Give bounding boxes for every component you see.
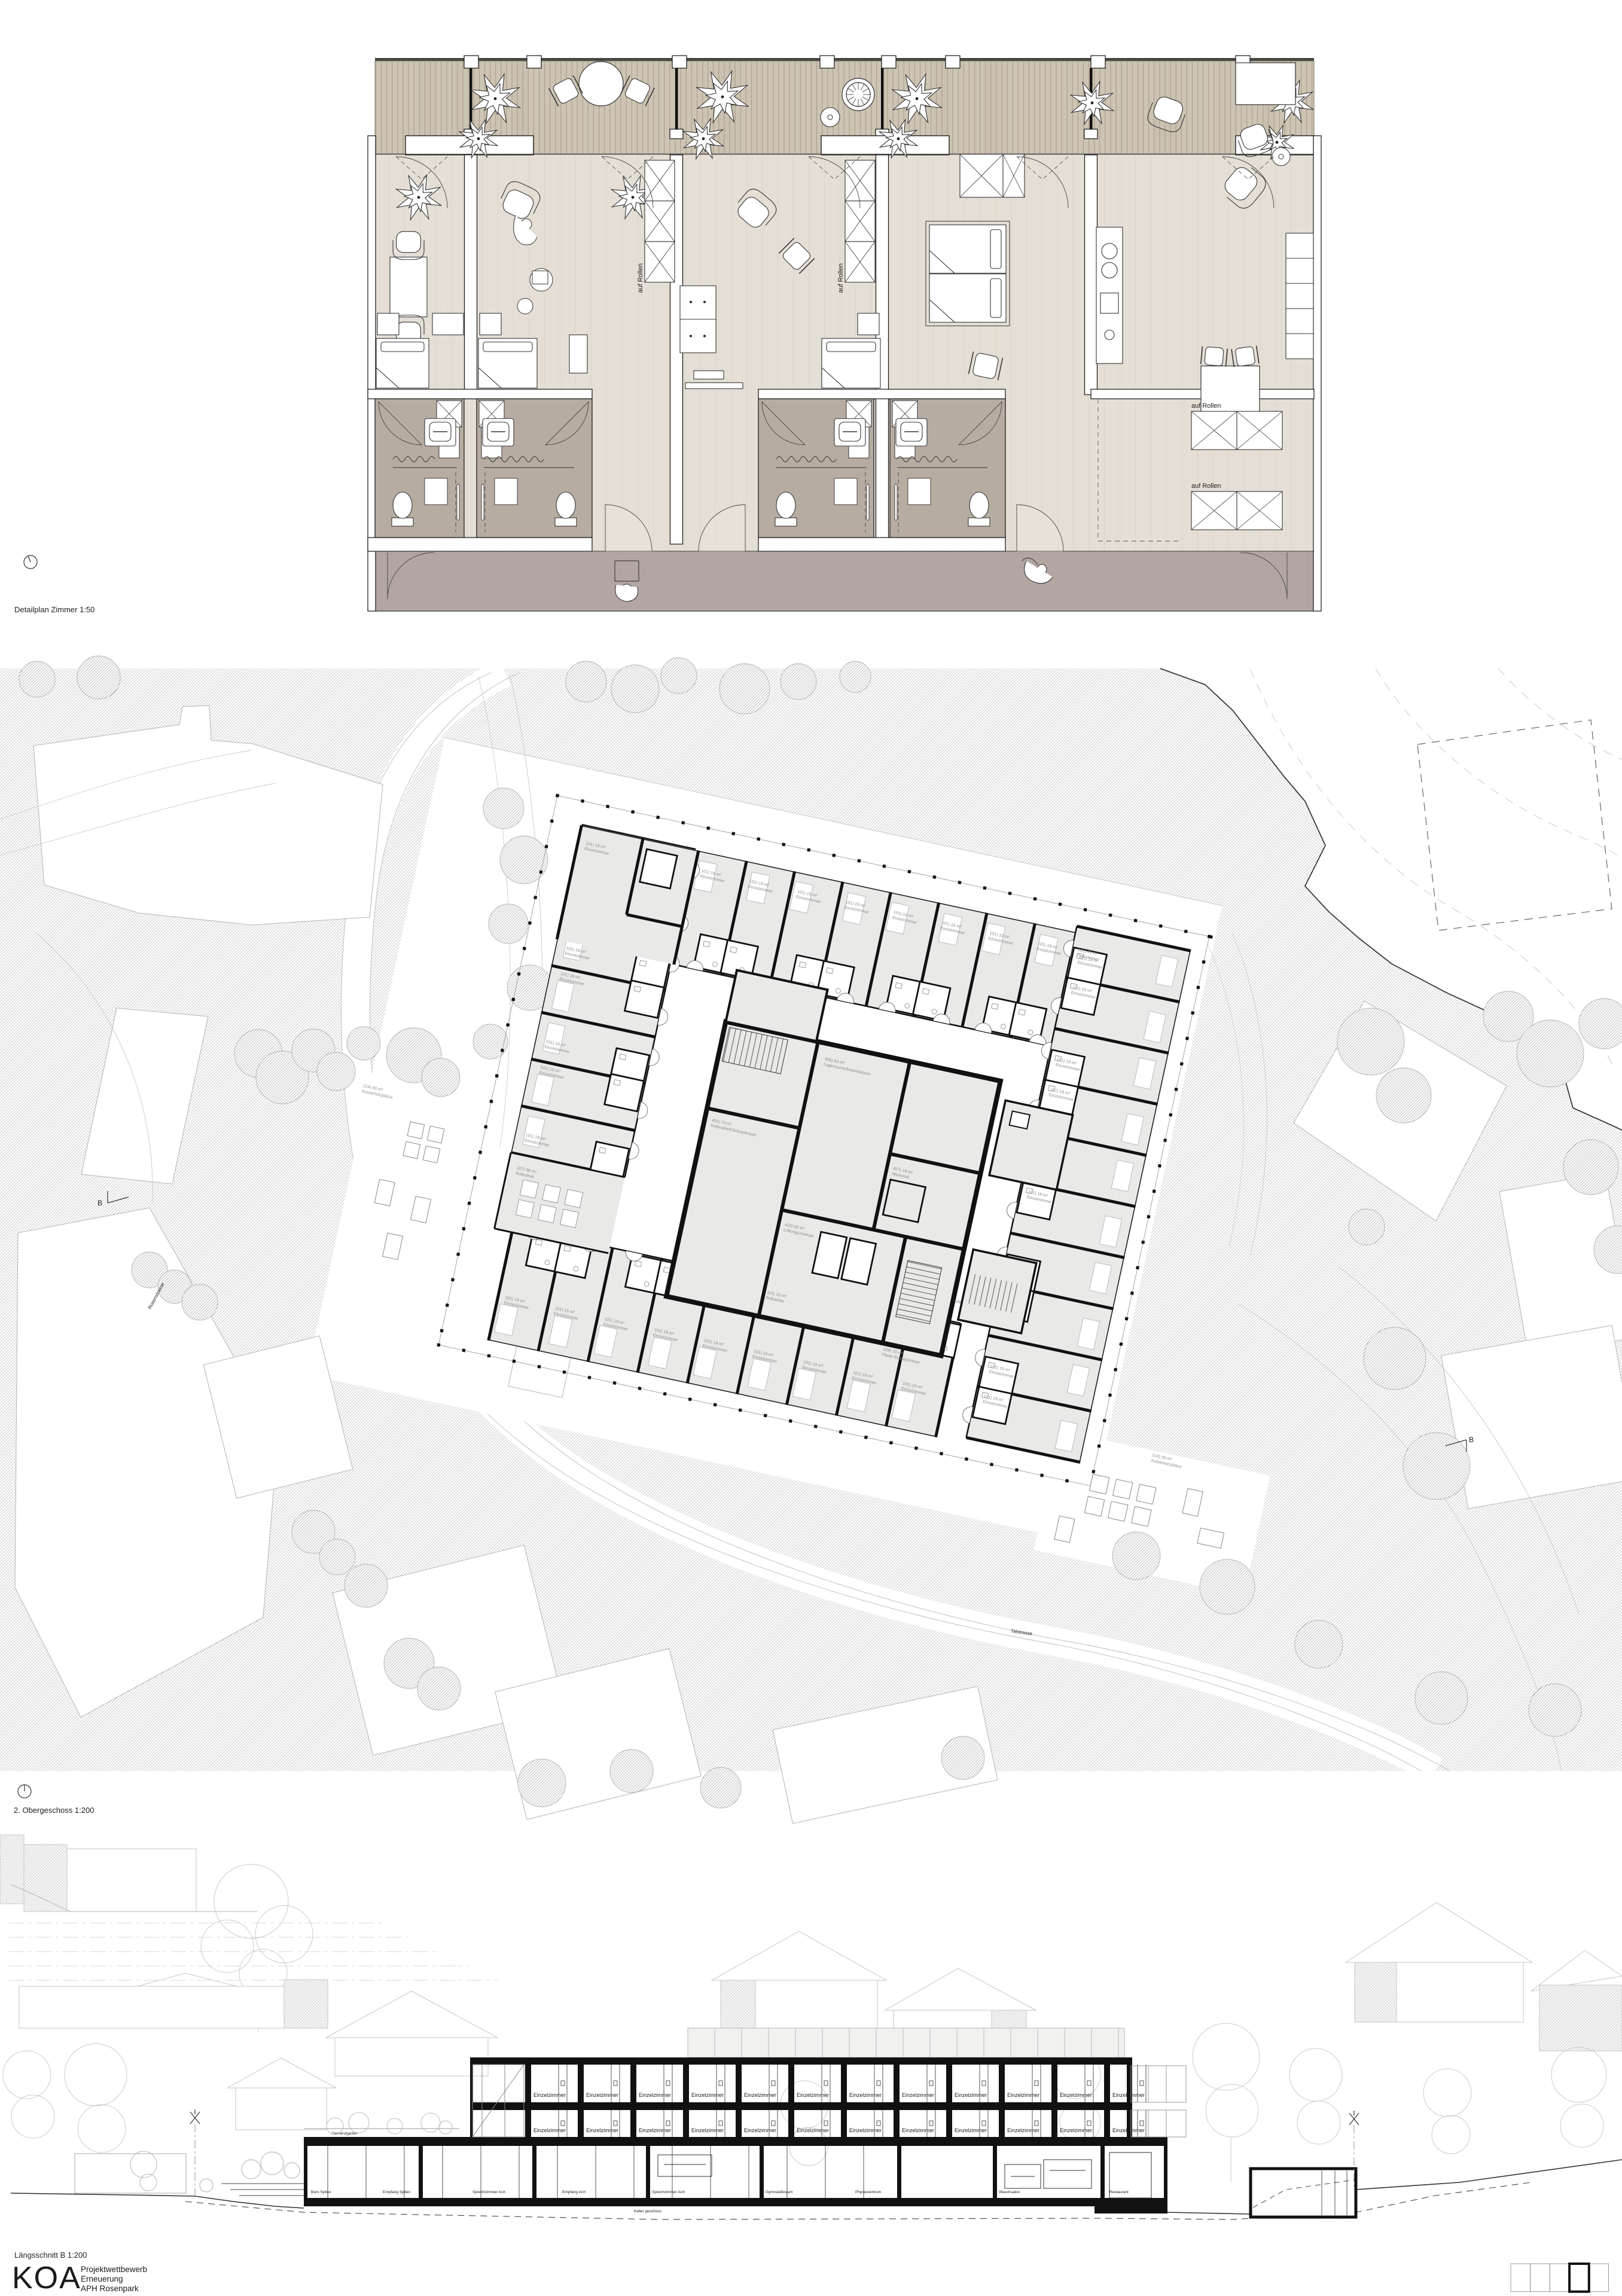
svg-text:Einzelzimmer: Einzelzimmer	[797, 2092, 829, 2098]
svg-text:Einzelzimmer: Einzelzimmer	[902, 2127, 934, 2133]
svg-text:Einzelzimmer: Einzelzimmer	[849, 2092, 882, 2098]
svg-text:Einzelzimmer: Einzelzimmer	[639, 2092, 671, 2098]
svg-text:B: B	[1469, 1436, 1474, 1444]
svg-text:Einzelzimmer: Einzelzimmer	[1060, 2127, 1092, 2133]
svg-text:Erneuerung: Erneuerung	[81, 2274, 123, 2283]
svg-text:Einzelzimmer: Einzelzimmer	[1060, 2092, 1092, 2098]
svg-text:Einzelzimmer: Einzelzimmer	[533, 2127, 566, 2133]
svg-text:Empfang Spitex: Empfang Spitex	[383, 2190, 411, 2194]
svg-text:auf Rollen: auf Rollen	[1191, 483, 1221, 490]
svg-text:Einzelzimmer: Einzelzimmer	[1112, 2127, 1145, 2133]
svg-text:Einzelzimmer: Einzelzimmer	[955, 2092, 987, 2098]
svg-text:Keller geschoss: Keller geschoss	[634, 2209, 662, 2213]
svg-text:Einzelzimmer: Einzelzimmer	[902, 2092, 934, 2098]
svg-text:B: B	[97, 1199, 102, 1207]
svg-text:Einzelzimmer: Einzelzimmer	[744, 2092, 776, 2098]
svg-text:Einzelzimmer: Einzelzimmer	[1007, 2127, 1039, 2133]
svg-text:auf Rollen: auf Rollen	[637, 263, 644, 293]
svg-text:2. Obergeschoss 1:200: 2. Obergeschoss 1:200	[14, 1806, 94, 1815]
svg-text:Demenzgarten: Demenzgarten	[332, 2132, 358, 2136]
svg-text:Physiozentrum: Physiozentrum	[855, 2190, 881, 2194]
svg-text:Einzelzimmer: Einzelzimmer	[691, 2092, 724, 2098]
svg-text:auf Rollen: auf Rollen	[1191, 402, 1221, 410]
svg-text:Projektwettbewerb: Projektwettbewerb	[81, 2265, 147, 2274]
svg-text:APH Rosenpark: APH Rosenpark	[81, 2284, 139, 2293]
svg-text:Einzelzimmer: Einzelzimmer	[586, 2092, 618, 2098]
svg-text:Einzelzimmer: Einzelzimmer	[1112, 2092, 1145, 2098]
svg-text:Einzelzimmer: Einzelzimmer	[639, 2127, 671, 2133]
svg-text:Waschsalon: Waschsalon	[999, 2190, 1020, 2194]
svg-text:Einzelzimmer: Einzelzimmer	[586, 2127, 618, 2133]
svg-text:auf Rollen: auf Rollen	[837, 263, 844, 293]
svg-text:Einzelzimmer: Einzelzimmer	[797, 2127, 829, 2133]
svg-text:Längsschnitt B 1:200: Längsschnitt B 1:200	[14, 2251, 87, 2260]
svg-text:Empfang Arzt: Empfang Arzt	[562, 2190, 586, 2194]
svg-text:Sprechzimmer Arzt: Sprechzimmer Arzt	[472, 2190, 505, 2194]
svg-text:Detailplan Zimmer 1:50: Detailplan Zimmer 1:50	[14, 605, 94, 614]
svg-text:Einzelzimmer: Einzelzimmer	[691, 2127, 724, 2133]
svg-text:Einzelzimmer: Einzelzimmer	[955, 2127, 987, 2133]
svg-text:Einzelzimmer: Einzelzimmer	[849, 2127, 882, 2133]
svg-text:KOA: KOA	[12, 2261, 81, 2295]
svg-text:Restaurant: Restaurant	[1109, 2190, 1129, 2194]
svg-text:Gymnastikraum: Gymnastikraum	[766, 2190, 793, 2194]
svg-text:Einzelzimmer: Einzelzimmer	[1007, 2092, 1039, 2098]
svg-text:Büro Spitex: Büro Spitex	[311, 2190, 331, 2194]
svg-text:Einzelzimmer: Einzelzimmer	[533, 2092, 566, 2098]
svg-text:Einzelzimmer: Einzelzimmer	[744, 2127, 776, 2133]
svg-text:Sprechzimmer Arzt: Sprechzimmer Arzt	[652, 2190, 685, 2194]
